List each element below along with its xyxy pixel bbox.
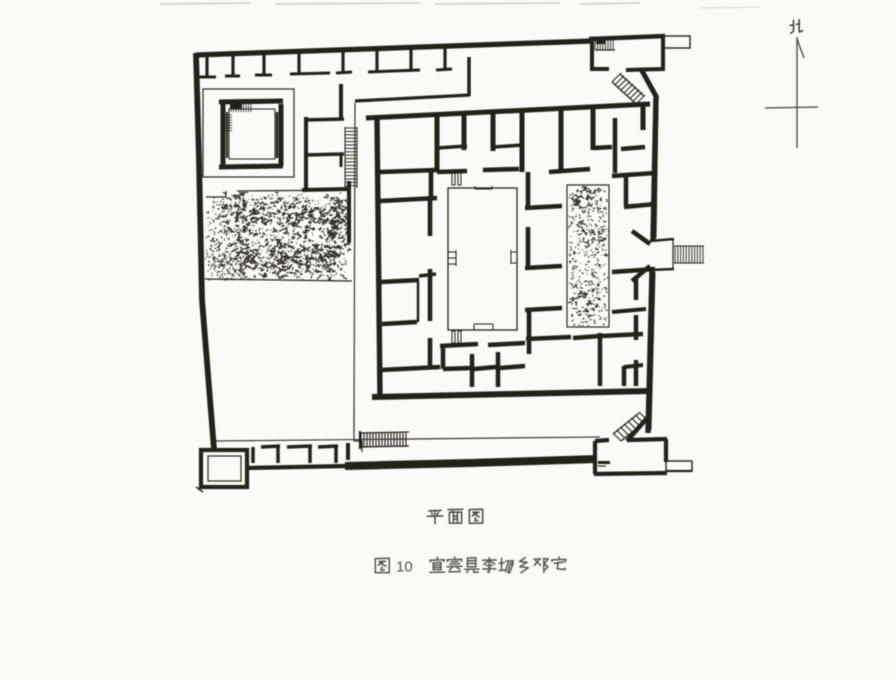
svg-text:10: 10 [396, 559, 413, 576]
